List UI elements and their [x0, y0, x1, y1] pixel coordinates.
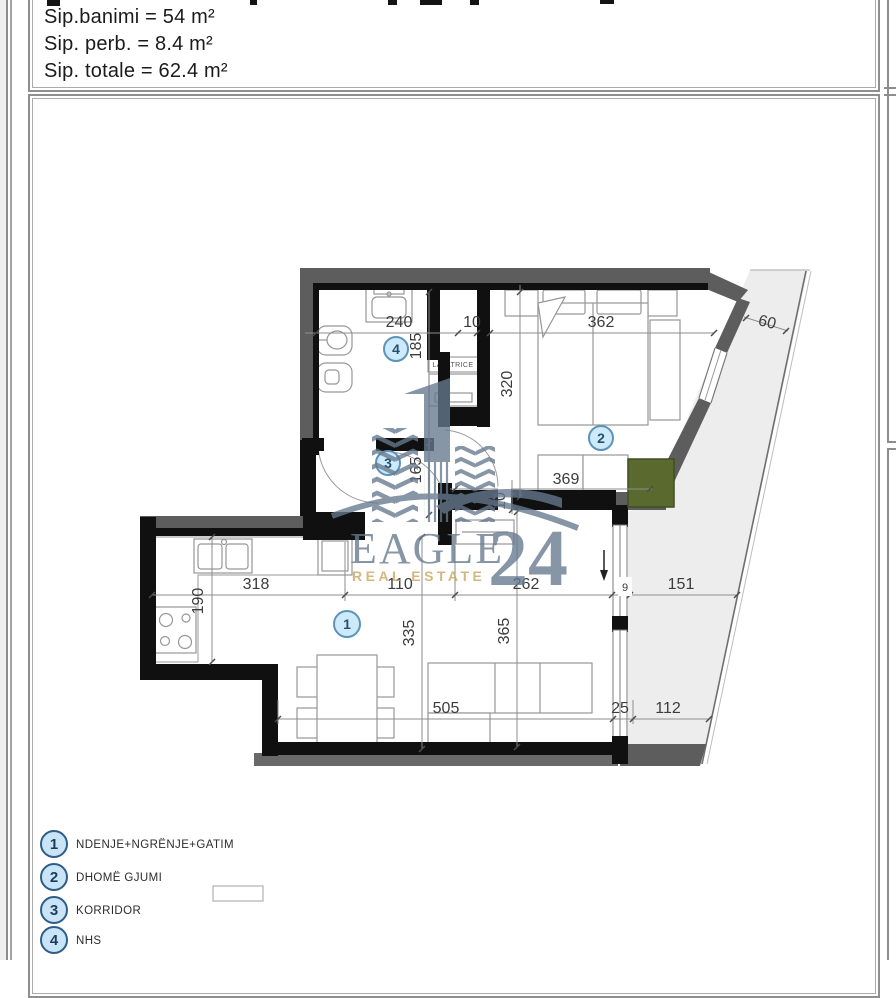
- scan-margin-line-outer: [6, 0, 8, 960]
- room-marker-1-num: 1: [343, 616, 351, 632]
- sofa-chaise: [428, 713, 490, 743]
- wall-living-top-inner: [140, 528, 310, 536]
- wall-balcony-bottom: [620, 744, 706, 766]
- bidet: [317, 363, 352, 392]
- area-line-banimi: Sip.banimi = 54 m²: [44, 4, 228, 31]
- cut-text-fragment: [388, 0, 397, 5]
- watermark-brand: EAGLE: [350, 524, 504, 573]
- nightstand-left: [505, 290, 538, 316]
- room-marker-4-num: 4: [392, 341, 400, 357]
- legend-num-3: 3: [50, 902, 58, 919]
- cut-text-fragment: [600, 0, 614, 4]
- wall-bedroom-left: [477, 283, 490, 427]
- adjacent-panel-edge-top: [887, 0, 889, 441]
- legend: 1 NDENJE+NGRËNJE+GATIM 2 DHOMË GJUMI 3 K…: [41, 831, 263, 953]
- legend-num-1: 1: [50, 836, 58, 853]
- wardrobe-green: [628, 459, 674, 507]
- wall-top-inner: [313, 283, 708, 290]
- cut-text-fragment: [470, 0, 479, 5]
- dim-335: 335: [401, 620, 418, 647]
- dim-369: 369: [553, 471, 580, 488]
- dim-365: 365: [496, 618, 513, 645]
- watermark-tower-right: [455, 446, 495, 522]
- watermark-number: 24: [488, 515, 568, 603]
- scanned-floor-plan-page: { "header": { "lines": [ "Sip.banimi = 5…: [0, 0, 896, 960]
- wall-living-top-gray: [140, 516, 308, 529]
- dim-190: 190: [190, 588, 207, 615]
- entrance-arrow: [600, 550, 608, 581]
- fridge: [318, 537, 352, 575]
- area-line-perb: Sip. perb. = 8.4 m²: [44, 31, 228, 58]
- dim-10a: 10: [463, 314, 481, 331]
- wall-living-left: [140, 517, 156, 679]
- wall-left-upper-exterior: [300, 268, 315, 460]
- cut-text-fragment: [250, 0, 257, 5]
- dim-505: 505: [433, 700, 460, 717]
- nightstand-right: [648, 290, 677, 316]
- floor-plan-drawing: LAVATRICE: [31, 97, 875, 957]
- watermark-tagline: REAL ESTATE: [352, 568, 485, 584]
- watermark-tower-center-stripes: [424, 462, 450, 522]
- dim-362: 362: [588, 314, 615, 331]
- wall-left-inner: [313, 283, 319, 455]
- legend-label-3: KORRIDOR: [76, 905, 141, 917]
- wall-corridor-left: [300, 440, 316, 520]
- dim-318: 318: [243, 576, 270, 593]
- scan-margin-line-inner: [10, 0, 12, 960]
- wall-living-bottom: [262, 742, 618, 755]
- dim-185: 185: [408, 333, 425, 360]
- arrow-head: [600, 570, 608, 581]
- wall-living-right-upper: [612, 505, 628, 527]
- legend-num-4: 4: [50, 932, 59, 949]
- dim-151: 151: [668, 576, 695, 593]
- adjacent-panel-divider-4: [887, 448, 896, 450]
- legend-label-2: DHOMË GJUMI: [76, 872, 162, 884]
- legend-label-1: NDENJE+NGRËNJE+GATIM: [76, 839, 234, 851]
- bathroom-door-arc: [318, 443, 378, 503]
- bedroom-wardrobe: [650, 320, 680, 420]
- adjacent-panel-edge-bottom: [887, 449, 889, 960]
- watermark-tower-left: [372, 428, 418, 522]
- legend-label-4: NHS: [76, 935, 101, 947]
- legend-num-2: 2: [50, 869, 58, 886]
- cut-text-fragment: [420, 0, 442, 5]
- wall-step-horizontal: [140, 664, 278, 680]
- cut-text-fragment: [47, 0, 60, 6]
- wall-top-exterior: [300, 268, 710, 284]
- dining-table: [317, 655, 377, 745]
- dim-9: 9: [622, 582, 628, 594]
- dim-240: 240: [386, 314, 413, 331]
- dim-25: 25: [611, 700, 629, 717]
- adjacent-panel-divider-2: [884, 94, 896, 96]
- adjacent-panel-divider-1: [884, 87, 896, 89]
- legend-stamp-box: [213, 886, 263, 901]
- watermark-tower-center: [424, 388, 450, 462]
- dim-112: 112: [655, 700, 681, 717]
- dim-320: 320: [499, 371, 516, 398]
- wall-living-right-lower: [612, 736, 628, 764]
- room-marker-2-num: 2: [597, 430, 605, 446]
- area-line-totale: Sip. totale = 62.4 m²: [44, 58, 228, 85]
- area-summary-text: Sip.banimi = 54 m² Sip. perb. = 8.4 m² S…: [44, 4, 228, 85]
- adjacent-panel-divider-3: [887, 441, 896, 443]
